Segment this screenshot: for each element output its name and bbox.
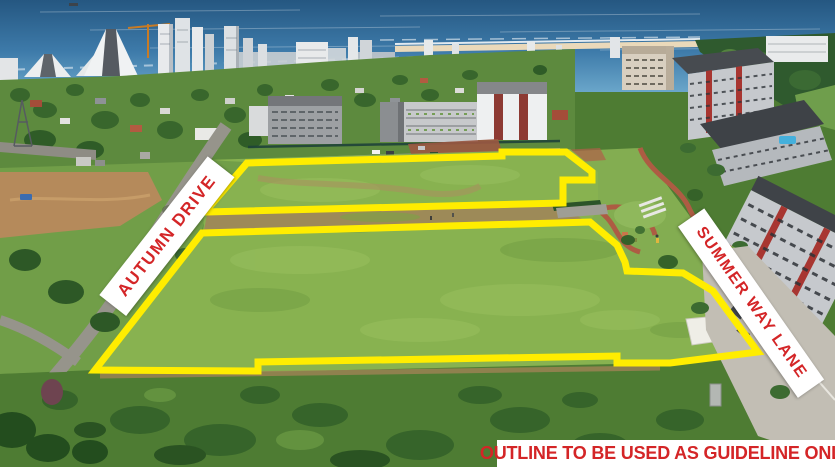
disclaimer-banner: OUTLINE TO BE USED AS GUIDELINE ONLY [497, 440, 835, 467]
disclaimer-text: OUTLINE TO BE USED AS GUIDELINE ONLY [480, 443, 835, 464]
listing-aerial-photo: AUTUMN DRIVE SUMMER WAY LANE OUTLINE TO … [0, 0, 835, 467]
lower-parcel-outline [95, 222, 758, 371]
upper-parcel-outline [205, 152, 592, 212]
